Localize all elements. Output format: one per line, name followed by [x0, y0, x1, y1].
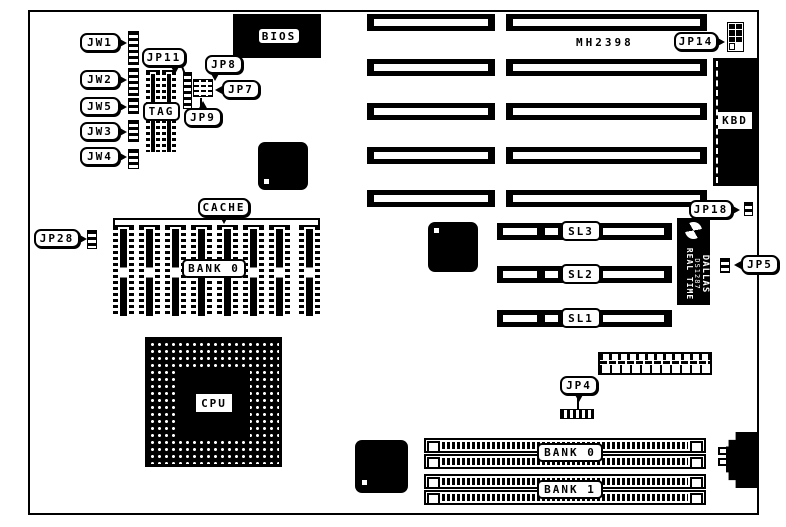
jumper-jp4	[560, 409, 594, 419]
callout-jp14: JP14	[674, 32, 718, 51]
board-model-text: MH2398	[576, 36, 634, 49]
callout-jp7: JP7	[222, 80, 260, 99]
cache-socket	[299, 225, 320, 316]
jumper-jp14-block	[727, 22, 744, 52]
simm-bank1-label: BANK 1	[537, 480, 603, 499]
jumper-cell	[736, 30, 742, 35]
isa-slot-4-right	[506, 147, 707, 164]
simm-bank1-text: BANK 1	[544, 483, 596, 496]
slot-opening	[545, 315, 558, 322]
tag-label: TAG	[143, 102, 180, 121]
isa-slot-1-right	[506, 14, 707, 31]
dallas-brand: DALLAS	[700, 243, 709, 305]
cpu-label: CPU	[196, 394, 232, 412]
jumper-jw4	[128, 149, 139, 169]
tag-label-text: TAG	[149, 105, 175, 118]
jumper-cell	[729, 43, 735, 50]
jumper-cell	[736, 37, 742, 42]
motherboard-layout-diagram: JW1 JW2 JW5 JW3 JW4 JP11 TAG JP8 JP7 JP9…	[0, 0, 786, 527]
slot-opening	[503, 228, 537, 235]
kbd-label: KBD	[718, 112, 752, 129]
dallas-type: REAL TIME	[685, 243, 693, 305]
isa-slot-2-right	[506, 59, 707, 76]
slot-opening	[503, 315, 537, 322]
kbd-label-text: KBD	[722, 114, 748, 127]
callout-jp9-label: JP9	[190, 111, 216, 124]
jumper-jw3	[128, 120, 139, 142]
pointer-icon	[118, 102, 127, 112]
cache-bank0-label: BANK 0	[182, 259, 246, 278]
din-keyboard-connector	[726, 432, 758, 488]
callout-jw1: JW1	[80, 33, 120, 52]
cache-socket	[269, 225, 290, 316]
callout-jw2-label: JW2	[87, 73, 113, 86]
isa-slot-1-left	[367, 14, 495, 31]
callout-jw3-label: JW3	[87, 125, 113, 138]
pin1-dot-icon	[362, 480, 367, 485]
slot-opening	[603, 315, 664, 322]
pointer-icon	[198, 101, 208, 110]
jumper-jw1	[128, 31, 139, 65]
qfp-chip-1	[258, 142, 308, 190]
pin1-dot-icon	[264, 179, 269, 184]
din-connector-body	[726, 432, 758, 488]
jumper-jp11	[183, 72, 192, 109]
dallas-rtc-text: DALLAS DS1287 REAL TIME	[677, 243, 709, 305]
slot-opening	[545, 228, 558, 235]
cpu-socket: CPU	[145, 337, 282, 467]
callout-jw1-label: JW1	[87, 36, 113, 49]
qfp-chip-3	[355, 440, 408, 493]
slot-opening	[603, 271, 664, 278]
sl1-label-text: SL1	[568, 312, 594, 325]
jumper-cell	[729, 30, 735, 35]
slot-opening	[545, 271, 558, 278]
cache-bracket	[113, 218, 320, 225]
jumper-jw5	[128, 98, 139, 114]
dallas-logo-icon	[685, 222, 702, 239]
callout-jp18-label: JP18	[694, 203, 729, 216]
cpu-label-text: CPU	[201, 397, 227, 410]
slot-opening	[603, 228, 664, 235]
isa-slot-3-right	[506, 103, 707, 120]
callout-jp8: JP8	[205, 55, 243, 74]
sl2-label: SL2	[561, 264, 601, 284]
callout-jw2: JW2	[80, 70, 120, 89]
pointer-icon	[118, 38, 127, 48]
callout-jw4-label: JW4	[87, 150, 113, 163]
power-connector	[598, 352, 712, 375]
sl1-slot: SL1	[497, 310, 672, 327]
pointer-icon	[219, 215, 229, 224]
pin1-dot-icon	[434, 228, 439, 233]
jumper-cell	[736, 24, 742, 29]
callout-jp9: JP9	[184, 108, 222, 127]
callout-jp28-label: JP28	[40, 232, 75, 245]
callout-jw3: JW3	[80, 122, 120, 141]
dallas-rtc-chip: DALLAS DS1287 REAL TIME	[677, 218, 710, 305]
simm-bank0-text: BANK 0	[544, 446, 596, 459]
pointer-icon	[118, 152, 127, 162]
pointer-icon	[118, 127, 127, 137]
bios-label: BIOS	[257, 27, 301, 45]
bios-label-text: BIOS	[262, 30, 297, 43]
sl3-slot: SL3	[497, 223, 672, 240]
callout-jw5-label: JW5	[87, 100, 113, 113]
cache-socket	[243, 225, 264, 316]
callout-jp11: JP11	[142, 48, 186, 67]
jumper-jp5	[720, 258, 730, 273]
pointer-icon	[78, 234, 87, 244]
callout-jp14-label: JP14	[679, 35, 714, 48]
callout-cache-label: CACHE	[202, 201, 245, 214]
simm-bank0-label: BANK 0	[537, 443, 603, 462]
isa-slot-3-left	[367, 103, 495, 120]
pointer-icon	[574, 393, 584, 402]
cache-bank0-text: BANK 0	[188, 262, 240, 275]
pointer-icon	[734, 260, 743, 270]
jumper-cell	[736, 43, 742, 50]
callout-jp4: JP4	[560, 376, 598, 395]
jumper-jp28	[87, 230, 97, 249]
callout-jp7-label: JP7	[228, 83, 254, 96]
isa-slot-4-left	[367, 147, 495, 164]
callout-jp28: JP28	[34, 229, 80, 248]
pointer-icon	[215, 85, 224, 95]
pointer-icon	[731, 205, 740, 215]
callout-jw5: JW5	[80, 97, 120, 116]
jumper-jw2	[128, 68, 139, 96]
cache-socket	[139, 225, 160, 316]
cache-socket	[113, 225, 134, 316]
qfp-chip-2	[428, 222, 478, 272]
callout-jw4: JW4	[80, 147, 120, 166]
pointer-icon	[210, 72, 220, 81]
jumper-jp7-jp8-block	[193, 79, 213, 97]
sl3-label-text: SL3	[568, 225, 594, 238]
kbd-connector: KBD	[713, 58, 757, 186]
sl2-slot: SL2	[497, 266, 672, 283]
jumper-cell	[729, 37, 735, 42]
pointer-icon	[170, 65, 180, 74]
jumper-jp18	[744, 202, 753, 216]
slot-opening	[503, 271, 537, 278]
isa-slot-2-left	[367, 59, 495, 76]
callout-jp8-label: JP8	[211, 58, 237, 71]
din-pin	[718, 458, 728, 466]
callout-jp5: JP5	[741, 255, 779, 274]
callout-jp18: JP18	[689, 200, 733, 219]
sl1-label: SL1	[561, 308, 601, 328]
callout-jp11-label: JP11	[147, 51, 182, 64]
callout-jp5-label: JP5	[747, 258, 773, 271]
callout-cache: CACHE	[198, 198, 250, 217]
bios-chip: BIOS	[233, 14, 321, 58]
dallas-part: DS1287	[693, 243, 700, 305]
jumper-cell	[729, 24, 735, 29]
isa-slot-5-right	[506, 190, 707, 207]
pointer-icon	[716, 37, 725, 47]
callout-jp4-label: JP4	[566, 379, 592, 392]
pointer-icon	[118, 75, 127, 85]
din-pin	[718, 447, 728, 455]
sl3-label: SL3	[561, 221, 601, 241]
isa-slot-5-left	[367, 190, 495, 207]
sl2-label-text: SL2	[568, 268, 594, 281]
